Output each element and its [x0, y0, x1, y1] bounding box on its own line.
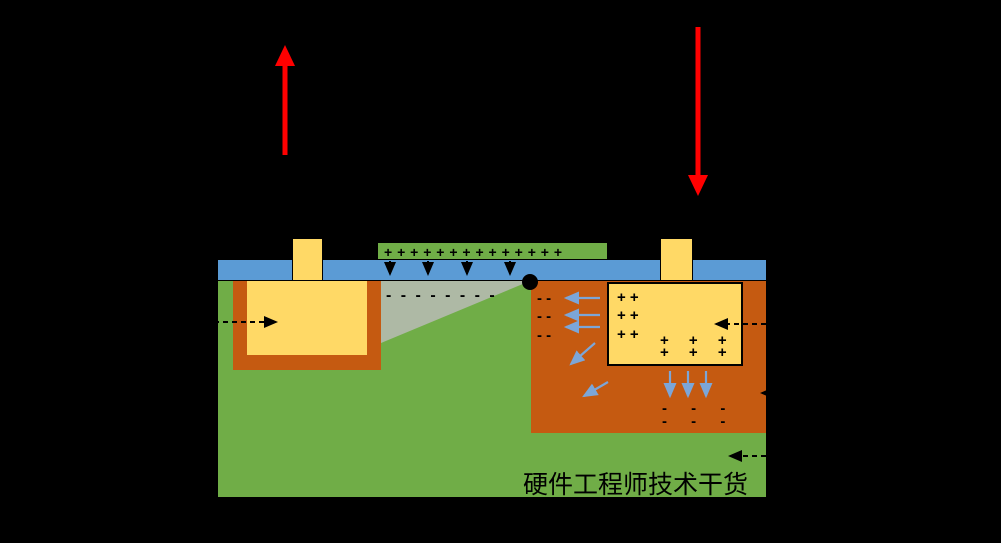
- drain-contact-plug: [660, 238, 693, 281]
- source-contact-plug: [292, 238, 323, 281]
- well-negative-charge: - -: [537, 291, 551, 306]
- device-cross-section-diagram: + + + + + + + + + + + + + + - - - - - - …: [0, 0, 1001, 543]
- watermark-text: 硬件工程师技术干货: [523, 465, 748, 501]
- well-negative-charge: - -: [537, 328, 551, 343]
- drain-positive-charge-row: + + +: [660, 345, 735, 360]
- source-region: [247, 281, 367, 355]
- well-negative-charge: - -: [537, 309, 551, 324]
- gate-positive-charges: + + + + + + + + + + + + + +: [384, 245, 563, 259]
- well-bottom-negative-row: - - -: [662, 414, 735, 429]
- drain-positive-charge: + +: [617, 327, 639, 342]
- drain-positive-charge: + +: [617, 290, 639, 305]
- channel-negative-charges: - - - - - - - -: [386, 288, 497, 304]
- drain-positive-charge: + +: [617, 308, 639, 323]
